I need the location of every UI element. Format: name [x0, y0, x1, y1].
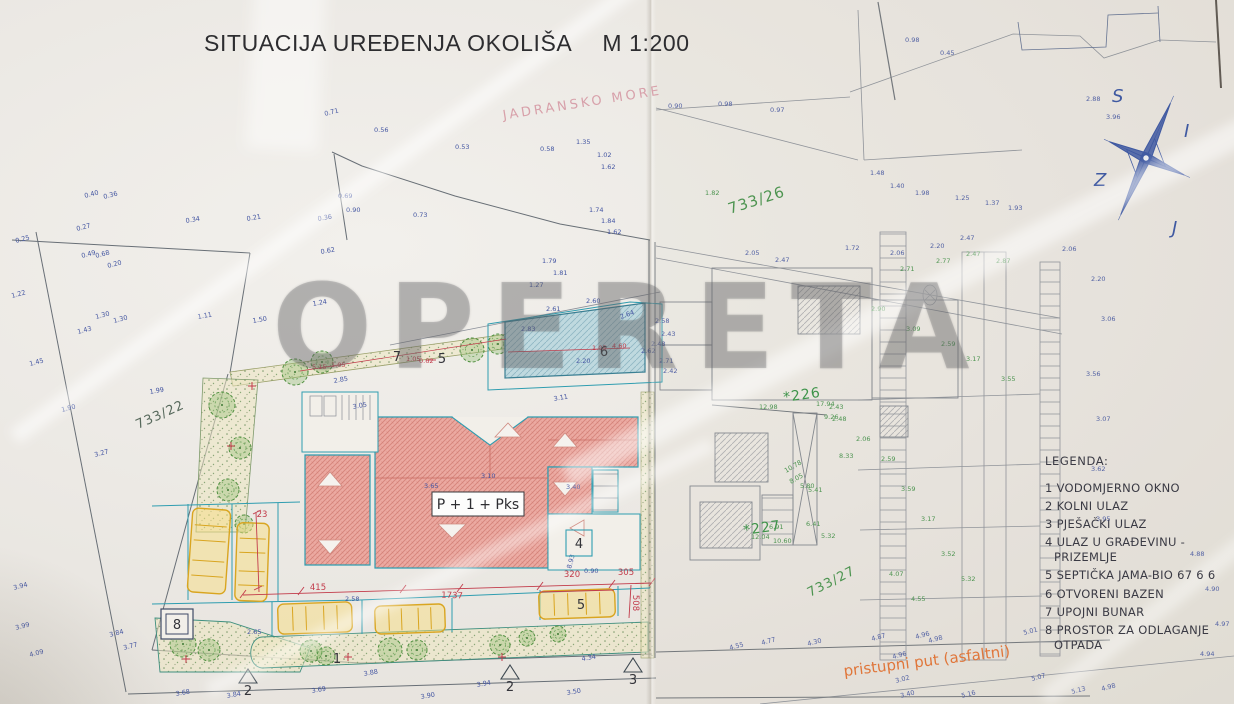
marker-number: 4 — [575, 537, 583, 552]
spot-elevation: 0.27 — [75, 221, 91, 232]
tree-icon — [407, 640, 427, 660]
spot-elevation: 3.88 — [363, 668, 379, 678]
spot-elevation: 1.11 — [197, 311, 213, 321]
spot-elevation: 2.06 — [856, 435, 870, 443]
spot-elevation: 0.98 — [905, 36, 919, 44]
spot-elevation: 1.45 — [28, 356, 44, 367]
plan-marker-2: 2 — [239, 669, 257, 699]
spot-elevation: 2.43 — [829, 403, 843, 411]
spot-elevation: 1.98 — [915, 189, 929, 197]
tree-icon — [519, 630, 535, 646]
spot-elevation: 3.84 — [226, 690, 242, 700]
plan-marker-5: 5 — [577, 598, 585, 613]
car-icon — [375, 604, 446, 634]
spot-elevation: 4.09 — [28, 647, 44, 658]
spot-elevation: 3.17 — [921, 515, 935, 523]
spot-elevation: 1.35 — [576, 138, 590, 146]
spot-elevation: 1.48 — [870, 169, 884, 177]
spot-elevation: 2.47 — [960, 234, 974, 242]
spot-elevation: 3.94 — [476, 679, 492, 689]
spot-elevation: 4.30 — [806, 636, 822, 647]
spot-elevation: 3.40 — [566, 483, 580, 491]
marker-number: 2 — [506, 680, 514, 695]
legend-item: 3 PJEŠAČKI ULAZ — [1045, 517, 1234, 532]
spot-elevation: 3.90 — [420, 691, 436, 701]
tree-icon — [217, 479, 239, 501]
legend: LEGENDA: 1 VODOMJERNO OKNO2 KOLNI ULAZ3 … — [1045, 454, 1234, 656]
plan-marker-1: 1 — [333, 652, 341, 667]
spot-elevation: 0.53 — [455, 143, 469, 151]
dimension-label: 320 — [564, 570, 580, 580]
dimension-label: 508 — [630, 595, 640, 611]
tree-icon — [378, 638, 402, 662]
spot-elevation: 0.25 — [14, 233, 30, 244]
main-building: P + 1 + Pks — [302, 392, 640, 570]
building-label-box: P + 1 + Pks — [432, 492, 524, 516]
spot-elevation: 3.06 — [1101, 315, 1115, 323]
tree-icon — [550, 626, 566, 642]
page-title: SITUACIJA UREĐENJA OKOLIŠAM 1:200 — [204, 30, 690, 57]
spot-elevation: 1.22 — [10, 288, 26, 299]
tree-icon — [490, 635, 510, 655]
spot-elevation: 1.37 — [985, 199, 999, 207]
spot-elevation: 0.58 — [540, 145, 554, 153]
compass-south-label: J — [1169, 218, 1177, 239]
plan-marker-2: 2 — [501, 665, 519, 695]
spot-elevation: 2.65 — [247, 628, 261, 636]
car-icon — [277, 602, 352, 635]
spot-elevation: 1.62 — [607, 228, 621, 236]
spot-elevation: 1.72 — [845, 244, 859, 252]
spot-elevation: 3.94 — [12, 580, 28, 591]
spot-elevation: 1.25 — [955, 194, 969, 202]
spot-elevation: 2.06 — [1062, 245, 1076, 253]
building-terrace-southeast — [548, 514, 640, 570]
spot-elevation: 3.55 — [1001, 375, 1015, 383]
compass-east-label: I — [1184, 121, 1189, 142]
building-stairs-east — [593, 470, 618, 512]
spot-elevation: 3.69 — [311, 685, 327, 695]
spot-elevation: 0.34 — [185, 215, 201, 225]
spot-elevation: 1.40 — [890, 182, 904, 190]
spot-elevation: 2.20 — [930, 242, 944, 250]
spot-elevation: 3.65 — [424, 482, 438, 490]
spot-elevation: 0.68 — [94, 248, 110, 259]
spot-elevation: 3.50 — [566, 687, 582, 697]
spot-elevation: 5.41 — [808, 486, 822, 494]
spot-elevation: 12.98 — [759, 403, 778, 411]
spot-elevation: 5.01 — [1022, 625, 1038, 636]
spot-elevation: 0.90 — [584, 567, 598, 575]
tree-icon — [229, 437, 251, 459]
spot-elevation: 1.30 — [94, 309, 110, 320]
legend-item: 7 UPOJNI BUNAR — [1045, 605, 1234, 620]
spot-elevation: 4.34 — [581, 653, 597, 663]
spot-elevation: 0.69 — [338, 192, 352, 200]
plan-marker-8: 8 — [161, 609, 193, 639]
spot-elevation: 5.13 — [1070, 684, 1086, 695]
spot-elevation: 1.74 — [589, 206, 603, 214]
spot-elevation: 3.84 — [108, 627, 124, 638]
spot-elevation: 5.07 — [1030, 671, 1046, 682]
spot-elevation: 0.62 — [320, 246, 336, 256]
legend-item: 6 OTVORENI BAZEN — [1045, 587, 1234, 602]
spot-elevation: 5.32 — [821, 532, 835, 540]
spot-elevation: 0.73 — [413, 211, 427, 219]
spot-elevation: 0.97 — [770, 106, 784, 114]
spot-elevation: 3.10 — [481, 472, 495, 480]
building-label: P + 1 + Pks — [437, 497, 519, 513]
spot-elevation: 1.99 — [149, 386, 165, 396]
legend-item: 5 SEPTIČKA JAMA-BIO 67 6 6 — [1045, 568, 1234, 583]
spot-elevation: 2.59 — [881, 455, 895, 463]
spot-elevation: 2.88 — [1086, 95, 1100, 103]
spot-elevation: 2.48 — [832, 415, 846, 423]
spot-elevation: 3.77 — [122, 640, 138, 651]
compass-west-label: Z — [1093, 170, 1107, 191]
spot-elevation: 0.36 — [317, 213, 333, 223]
spot-elevation: 4.98 — [1100, 681, 1116, 692]
car-icon — [187, 508, 231, 594]
spot-elevation: 3.99 — [14, 620, 30, 631]
parcel-label: 733/22 — [134, 398, 187, 433]
spot-elevation: 0.56 — [374, 126, 388, 134]
scanned-site-plan: P + 1 + Pks 415173732030550823 0.710.560… — [0, 0, 1234, 704]
parcel-label: 733/26 — [726, 183, 787, 218]
dimension-label: 305 — [618, 568, 634, 578]
spot-elevation: 1.30 — [112, 313, 128, 324]
spot-elevation: 2.58 — [345, 595, 359, 603]
spot-elevation: 0.21 — [246, 213, 262, 223]
spot-elevation: 1.62 — [601, 163, 615, 171]
spot-elevation: 3.59 — [901, 485, 915, 493]
dimension-label: 1737 — [441, 591, 463, 602]
spot-elevation: 10.60 — [773, 537, 792, 545]
spot-elevation: 2.87 — [996, 257, 1010, 265]
dimension-label: 23 — [257, 510, 268, 520]
car-icon — [235, 522, 270, 601]
compass-north-label: S — [1112, 86, 1123, 107]
spot-elevation: 0.40 — [83, 188, 99, 199]
spot-elevation: 2.05 — [745, 249, 759, 257]
marker-number: 1 — [333, 652, 341, 667]
marker-number: 8 — [173, 618, 181, 633]
spot-elevation: 0.98 — [718, 100, 732, 108]
spot-elevation: 1.50 — [252, 315, 268, 325]
spot-elevation: 1.43 — [76, 324, 92, 335]
spot-elevation: 3.56 — [1086, 370, 1100, 378]
spot-elevation: 4.77 — [760, 635, 776, 646]
spot-elevation: 6.41 — [806, 520, 820, 528]
spot-elevation: 1.84 — [601, 217, 615, 225]
spot-elevation: 3.07 — [1096, 415, 1110, 423]
spot-elevation: 3.27 — [93, 447, 109, 458]
spot-elevation: 3.96 — [1106, 113, 1120, 121]
spot-elevation: 3.52 — [941, 550, 955, 558]
spot-elevation: 0.20 — [106, 258, 122, 269]
tree-icon — [198, 639, 220, 661]
planting-strip-east — [641, 392, 654, 658]
spot-elevation: 1.02 — [597, 151, 611, 159]
spot-elevation: 0.90 — [346, 206, 360, 214]
spot-elevation: 5.16 — [960, 688, 976, 699]
spot-elevation: 2.06 — [890, 249, 904, 257]
spot-elevation: 1.82 — [705, 189, 719, 197]
spot-elevation: 8.33 — [839, 452, 853, 460]
marker-number: 5 — [577, 598, 585, 613]
spot-elevation: 4.07 — [889, 570, 903, 578]
building-west-wing — [305, 455, 370, 565]
spot-elevation: 0.90 — [668, 102, 682, 110]
legend-heading: LEGENDA: — [1045, 454, 1234, 469]
spot-elevation: 0.36 — [102, 189, 118, 200]
plan-marker-3: 3 — [624, 658, 642, 688]
marker-number: 2 — [244, 684, 252, 699]
tree-icon — [209, 392, 235, 418]
spot-elevation: 0.71 — [323, 106, 339, 117]
building-terrace-northwest — [302, 392, 378, 452]
spot-elevation: 2.20 — [1091, 275, 1105, 283]
spot-elevation: 0.45 — [940, 49, 954, 57]
title-text: SITUACIJA UREĐENJA OKOLIŠA — [204, 30, 572, 56]
spot-elevation: 3.02 — [894, 673, 910, 684]
spot-elevation: 5.32 — [961, 575, 975, 583]
legend-item: 1 VODOMJERNO OKNO — [1045, 481, 1234, 496]
marker-number: 3 — [629, 673, 637, 688]
parcel-label: 733/27 — [805, 564, 858, 601]
legend-item: 2 KOLNI ULAZ — [1045, 499, 1234, 514]
legend-item: 4 ULAZ U GRAĐEVINU - PRIZEMLJE — [1045, 535, 1234, 564]
spot-elevation: 1.90 — [60, 402, 76, 413]
spot-elevation: 3.68 — [175, 688, 191, 698]
dimension-label: 415 — [310, 583, 326, 593]
spot-elevation: 1.93 — [1008, 204, 1022, 212]
spot-elevation: 4.55 — [911, 595, 925, 603]
watermark: OPERETA — [272, 258, 986, 396]
spot-elevation: 3.40 — [899, 688, 915, 699]
title-scale: M 1:200 — [602, 30, 689, 56]
spot-elevation: 2.47 — [966, 250, 980, 258]
legend-item: 8 PROSTOR ZA ODLAGANJE OTPADA — [1045, 623, 1234, 652]
